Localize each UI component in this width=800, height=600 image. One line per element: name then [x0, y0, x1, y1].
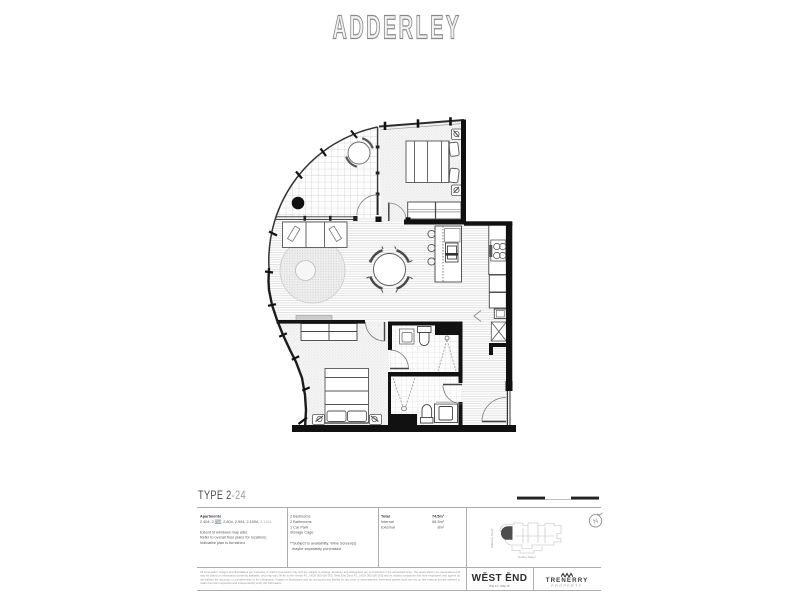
svg-text:N: N: [592, 517, 599, 525]
svg-text:ADDERLEY: ADDERLEY: [333, 9, 462, 46]
